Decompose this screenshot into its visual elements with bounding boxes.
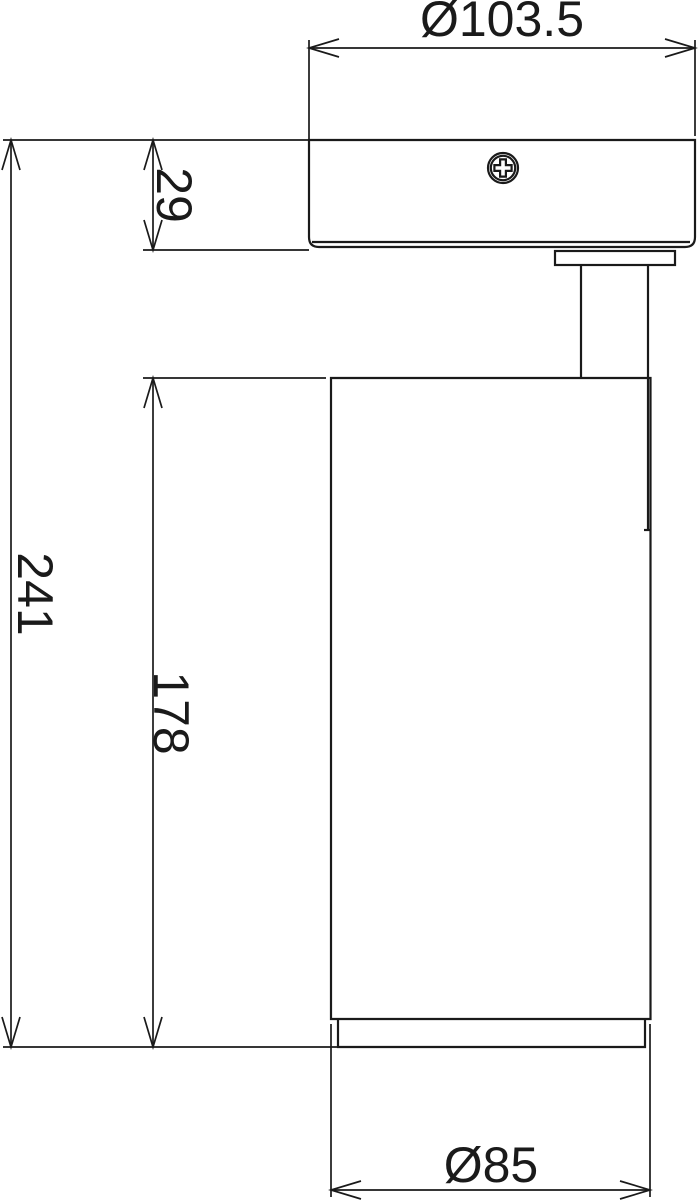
body-outline xyxy=(331,378,651,1019)
dim-overall-height: 241 xyxy=(2,140,63,1047)
dim-overall-height-label: 241 xyxy=(7,552,63,635)
technical-drawing: Ø103.5 29 241 178 xyxy=(0,0,700,1200)
dim-canopy-diameter: Ø103.5 xyxy=(309,0,695,139)
mounting-bracket xyxy=(555,251,675,265)
dim-body-height: 178 xyxy=(143,378,326,1047)
dim-body-diameter: Ø85 xyxy=(331,1024,650,1199)
dim-canopy-diameter-label: Ø103.5 xyxy=(420,0,584,47)
trim-ring xyxy=(338,1019,645,1047)
dim-canopy-height: 29 xyxy=(143,140,309,250)
luminaire-outline xyxy=(309,140,695,1047)
drawing-sheet: Ø103.5 29 241 178 xyxy=(0,0,700,1200)
dim-body-height-label: 178 xyxy=(143,671,199,754)
phillips-screw-icon xyxy=(488,153,518,183)
screw-cross xyxy=(494,159,511,176)
dim-canopy-height-label: 29 xyxy=(146,167,202,223)
dim-body-diameter-label: Ø85 xyxy=(444,1137,539,1193)
